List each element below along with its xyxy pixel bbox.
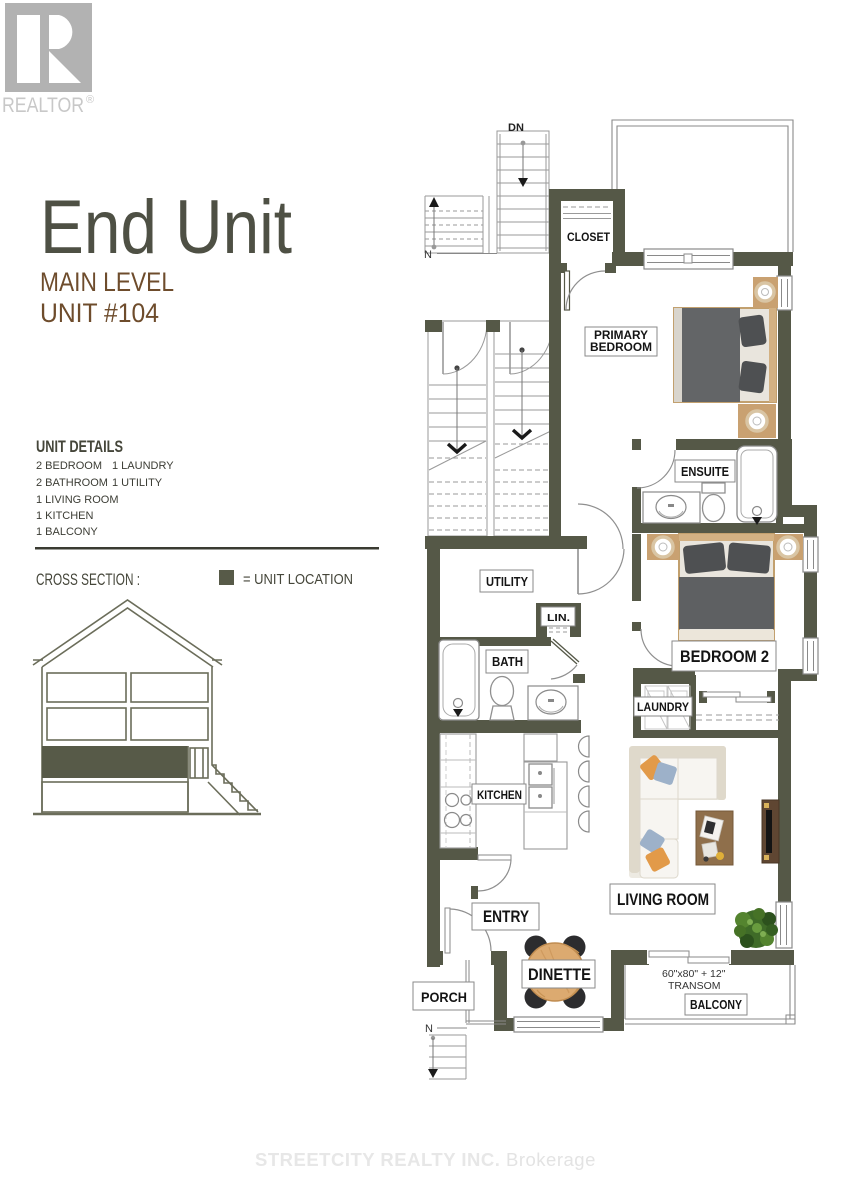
svg-text:DN: DN [508,122,524,134]
svg-text:ENTRY: ENTRY [483,908,529,926]
svg-text:60"x80" + 12": 60"x80" + 12" [662,968,726,980]
svg-text:LAUNDRY: LAUNDRY [637,700,689,714]
svg-text:BEDROOM: BEDROOM [590,342,652,354]
svg-text:UNIT #104: UNIT #104 [40,298,159,328]
svg-text:CROSS SECTION :: CROSS SECTION : [36,571,140,589]
svg-text:ENSUITE: ENSUITE [681,465,729,479]
svg-text:2 BATHROOM: 2 BATHROOM [36,477,108,489]
svg-text:N: N [425,1023,433,1035]
svg-text:1 BALCONY: 1 BALCONY [36,526,98,538]
svg-text:LIVING ROOM: LIVING ROOM [617,891,709,909]
svg-text:UTILITY: UTILITY [486,575,529,589]
svg-text:1 UTILITY: 1 UTILITY [112,477,163,489]
svg-text:1 LIVING ROOM: 1 LIVING ROOM [36,494,119,506]
svg-text:®: ® [86,94,94,106]
svg-text:MAIN LEVEL: MAIN LEVEL [40,267,174,297]
svg-text:DINETTE: DINETTE [528,966,591,984]
svg-text:UNIT DETAILS: UNIT DETAILS [36,437,123,456]
svg-text:BATH: BATH [492,655,523,669]
svg-text:BEDROOM 2: BEDROOM 2 [680,648,769,666]
svg-text:BALCONY: BALCONY [690,998,743,1012]
svg-text:LIN.: LIN. [547,612,570,624]
svg-text:N: N [424,249,432,261]
svg-text:REALTOR: REALTOR [2,94,84,117]
svg-text:CLOSET: CLOSET [567,230,611,244]
svg-text:PRIMARY: PRIMARY [594,330,648,342]
svg-text:STREETCITY REALTY INC. Broke: STREETCITY REALTY INC. Brokerage [255,1149,596,1170]
svg-text:= UNIT LOCATION: = UNIT LOCATION [243,572,353,588]
svg-text:End Unit: End Unit [40,185,292,270]
svg-text:PORCH: PORCH [421,989,467,1005]
svg-text:2 BEDROOM: 2 BEDROOM [36,460,102,472]
svg-text:TRANSOM: TRANSOM [668,980,721,992]
svg-text:1 LAUNDRY: 1 LAUNDRY [112,460,174,472]
svg-text:KITCHEN: KITCHEN [477,788,522,802]
svg-text:1 KITCHEN: 1 KITCHEN [36,510,94,522]
